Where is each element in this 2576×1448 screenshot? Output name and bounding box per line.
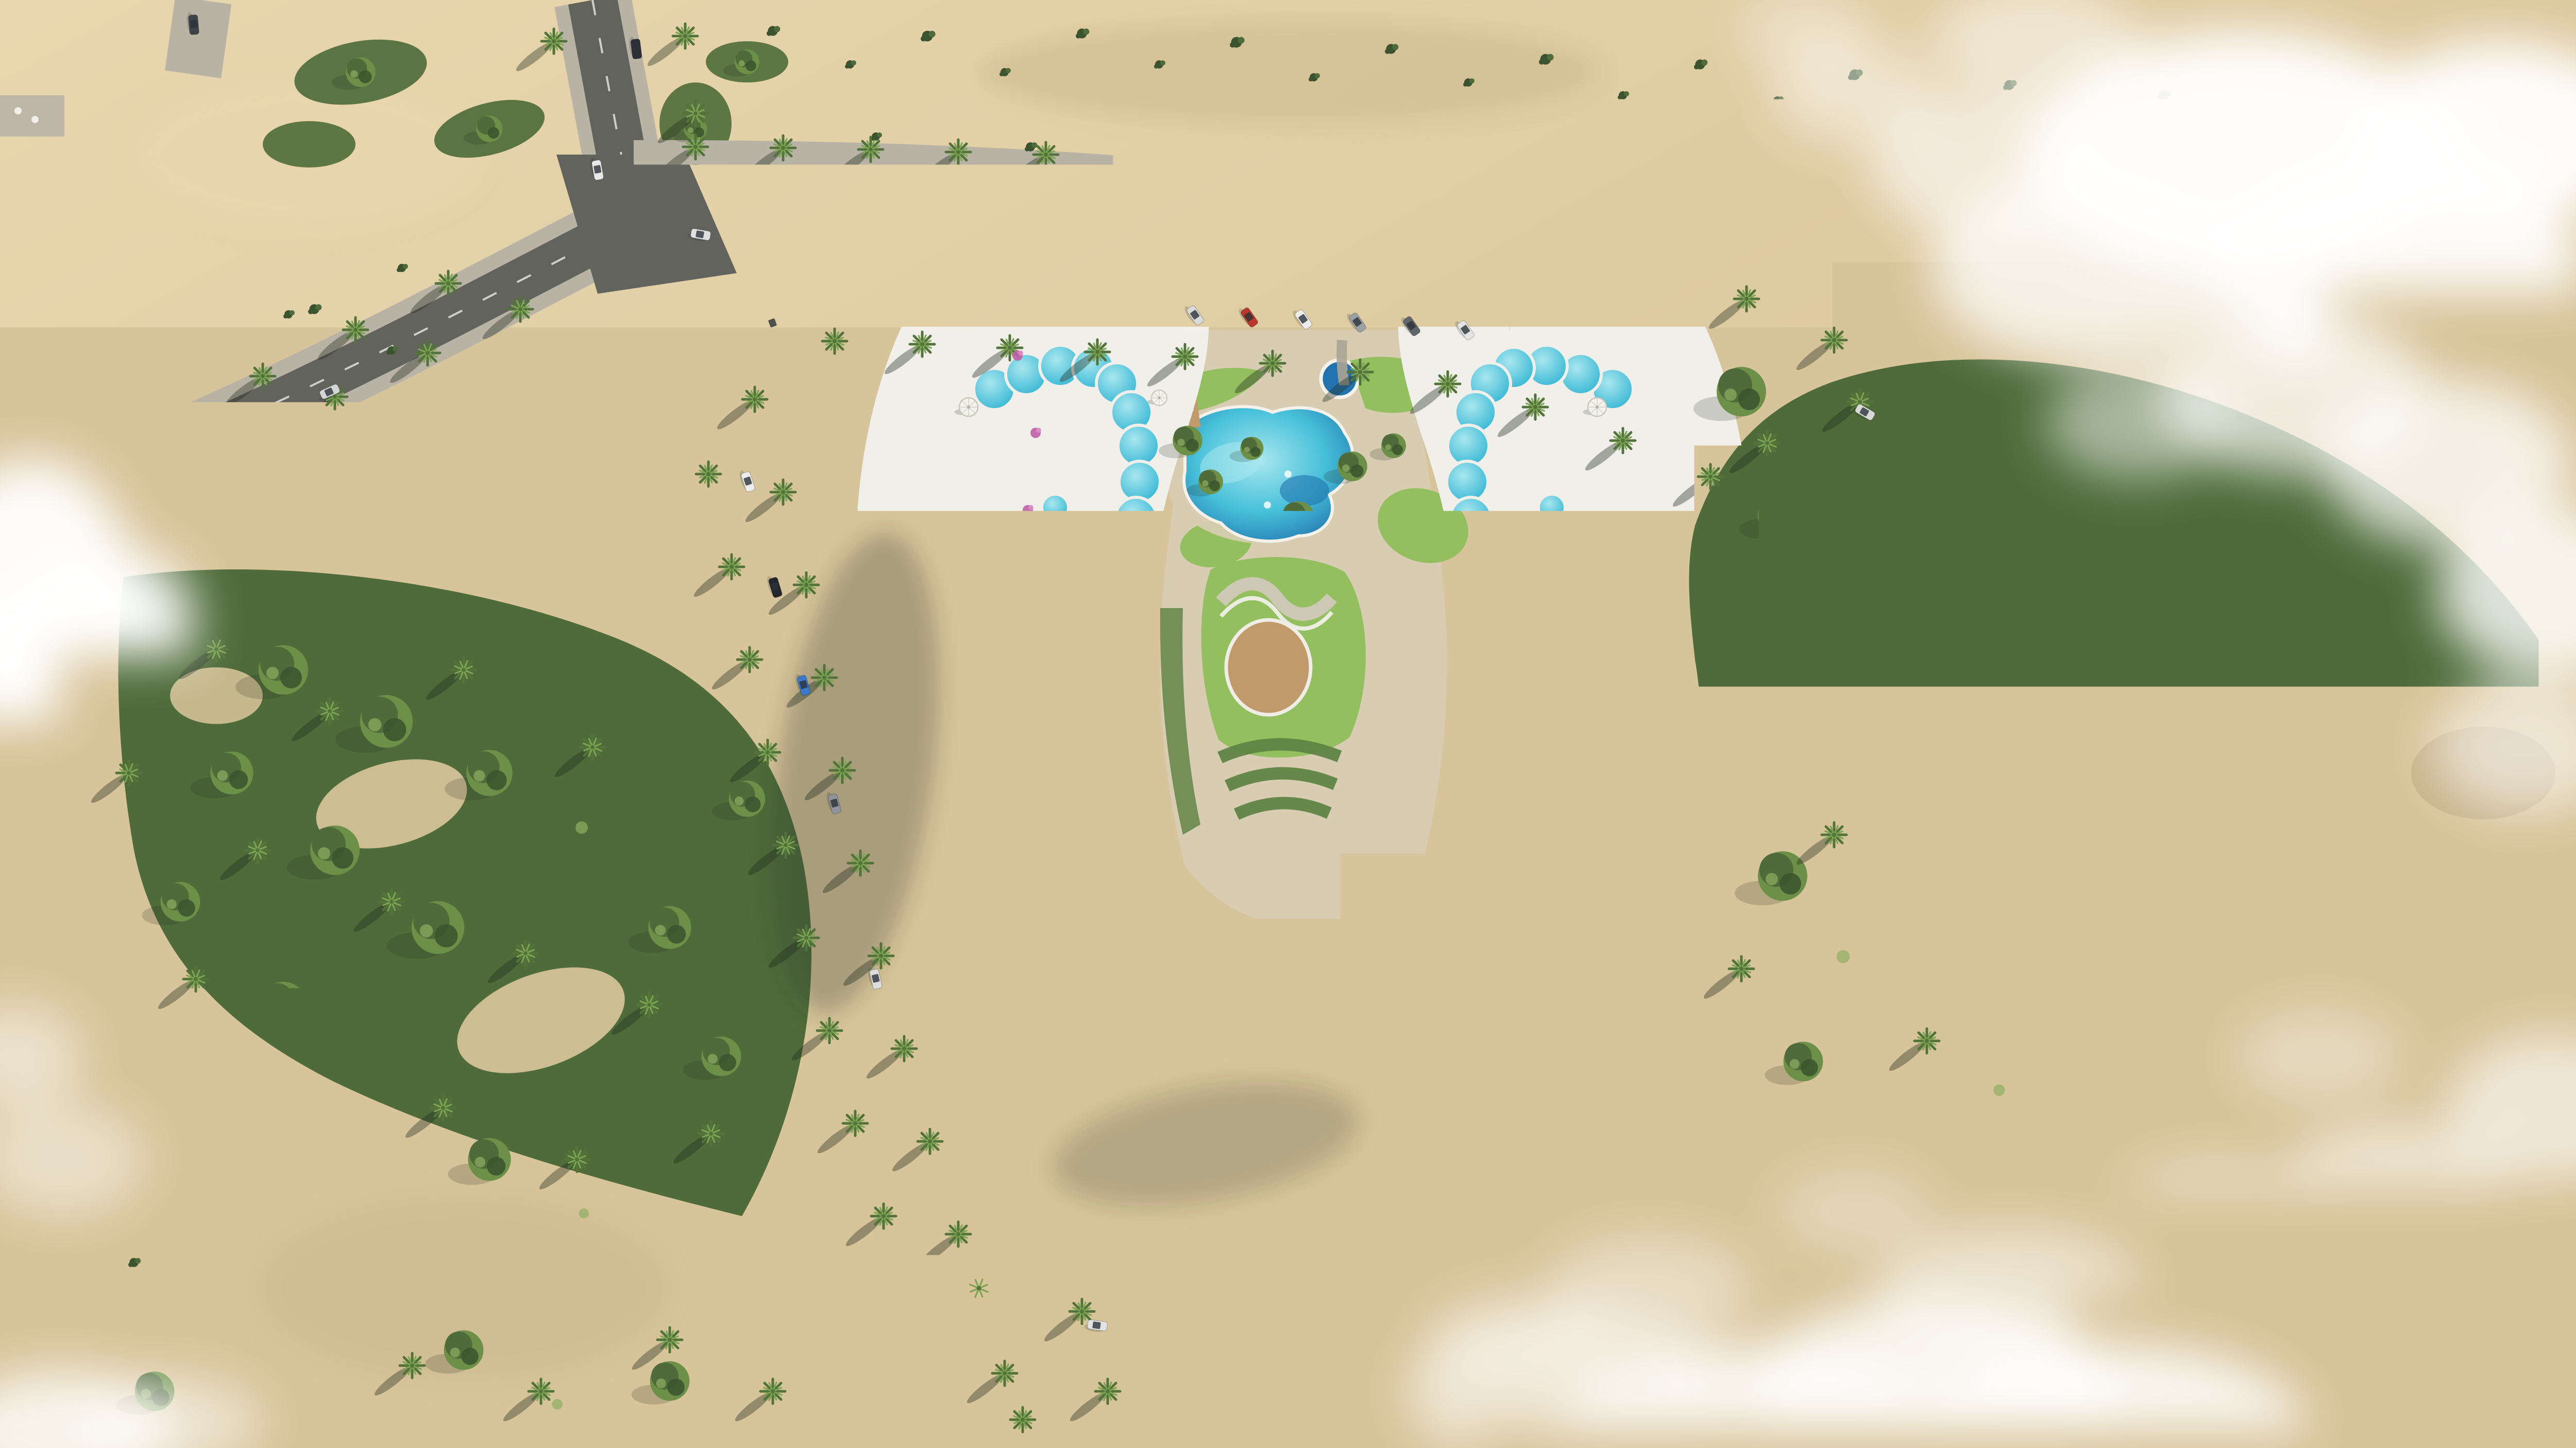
flower-bed [1206,871,1211,876]
terrace-pool [1018,571,1045,598]
flower-bed [1448,773,1453,778]
flower-bed [1178,783,1183,788]
terrace-pool [1562,571,1589,598]
terrace-pool [1028,533,1055,560]
cloud [1427,1293,1613,1386]
terrace-pool [1008,649,1035,676]
person [1291,848,1296,853]
person [1388,734,1394,740]
person [1904,642,1909,647]
terrace-pool [1552,533,1579,560]
person [1324,855,1330,861]
flower-bed [1456,603,1461,608]
terrace-pool [1463,569,1504,611]
flower-bed [1422,814,1428,819]
terrace-pool [1569,610,1596,637]
cloud [1777,1170,1932,1252]
flower-bed [1410,861,1415,866]
person [1342,868,1348,874]
person [1224,801,1229,807]
person [1249,693,1255,699]
person [1296,760,1301,766]
playground-circle [1808,587,1994,773]
person [1242,745,1247,750]
terrace-pool [1042,494,1069,521]
flower-bed [1160,727,1165,732]
flower-bed [1028,505,1033,510]
person [1399,714,1404,719]
cloud [2236,1010,2401,1103]
person [1275,835,1281,840]
terrace-pool [1008,687,1035,714]
person [1314,745,1319,750]
terrace-pool [1103,569,1144,611]
terrace-pool [1109,533,1150,575]
person [1270,1054,1276,1059]
flower-bed [1428,724,1433,729]
flower-bed [1196,827,1201,832]
cloud [2045,366,2231,479]
road-stub [165,0,231,78]
cloud [41,546,196,680]
person [1337,667,1343,673]
flower-bed [1438,665,1443,670]
terrace-pool [1572,649,1599,676]
terrace-pool [1456,533,1498,575]
person [1883,693,1889,699]
flower-bed [1167,670,1173,675]
person [1275,776,1281,781]
terrace-pool [1115,497,1157,538]
person [1283,873,1289,879]
terrace-pool [1475,714,1516,755]
terrace-pool [1572,687,1599,714]
terrace-pool [1011,610,1038,637]
person [1378,832,1384,838]
person [1309,843,1314,848]
person [1358,801,1363,807]
terrace-pool [1538,494,1565,521]
person [1296,1007,1301,1013]
bus-stop-pad [0,95,64,137]
flower-bed [1188,611,1193,616]
person [1260,791,1265,797]
flower-bed [1018,350,1023,356]
flower-bed [1036,428,1041,433]
person [1319,897,1325,902]
terrace-pool [1450,497,1492,538]
person [1301,884,1307,889]
aerial-resort-render: Aerial render of a U-shaped beachfront r… [0,0,2576,1448]
cloud [1875,1226,2143,1350]
terrace-pool [1091,714,1132,755]
